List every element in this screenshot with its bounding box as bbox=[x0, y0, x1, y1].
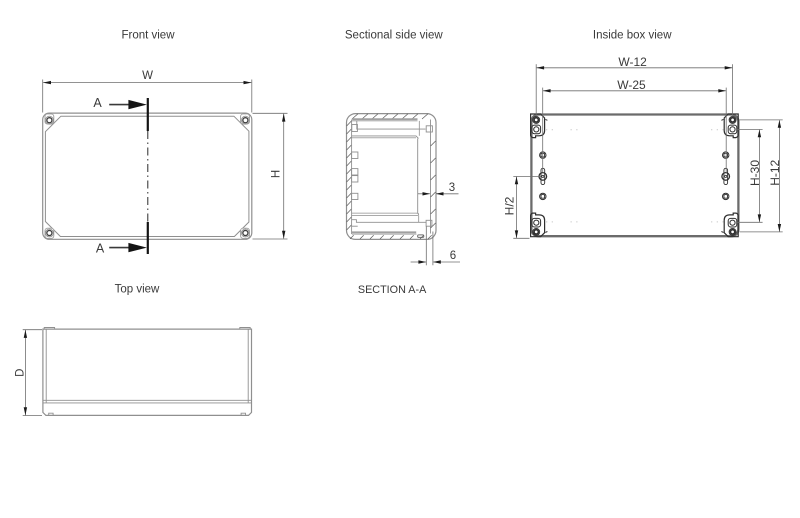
svg-text:W-25: W-25 bbox=[617, 78, 646, 92]
svg-text:H-30: H-30 bbox=[748, 160, 762, 186]
svg-text:Top view: Top view bbox=[115, 284, 160, 296]
svg-text:H/2: H/2 bbox=[502, 196, 516, 215]
svg-text:H: H bbox=[271, 170, 283, 178]
svg-text:6: 6 bbox=[450, 250, 456, 262]
svg-text:SECTION A-A: SECTION A-A bbox=[358, 284, 427, 296]
svg-text:H-12: H-12 bbox=[768, 159, 782, 185]
svg-text:Sectional side view: Sectional side view bbox=[345, 30, 443, 42]
svg-text:A: A bbox=[93, 96, 102, 110]
svg-text:D: D bbox=[14, 369, 26, 377]
svg-text:W-12: W-12 bbox=[618, 55, 647, 69]
svg-text:W: W bbox=[142, 70, 153, 82]
svg-text:Front view: Front view bbox=[121, 30, 175, 42]
svg-text:A: A bbox=[96, 242, 105, 256]
svg-text:3: 3 bbox=[449, 182, 455, 194]
svg-text:Inside box view: Inside box view bbox=[593, 30, 672, 42]
